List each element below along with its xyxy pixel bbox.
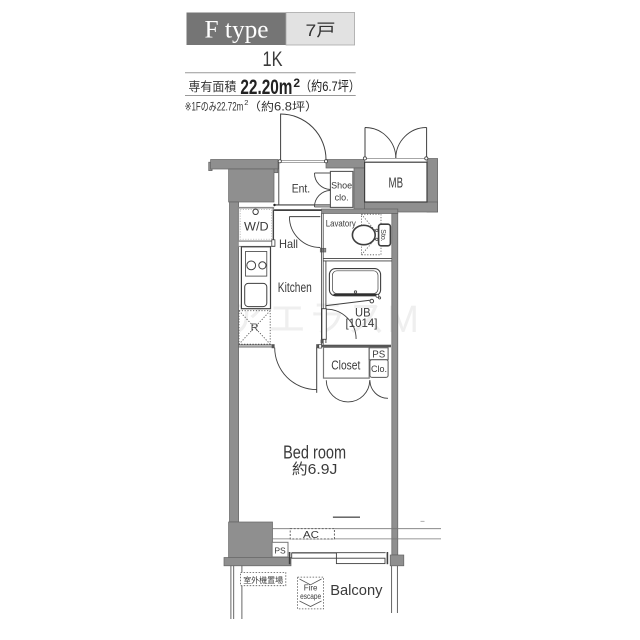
svg-text:（約6.8坪）: （約6.8坪）	[248, 100, 318, 114]
svg-text:PS: PS	[274, 546, 286, 556]
svg-text:escape: escape	[300, 592, 321, 601]
svg-text:Clo.: Clo.	[371, 364, 387, 375]
svg-text:1K: 1K	[263, 48, 283, 71]
svg-text:室外機置場: 室外機置場	[243, 575, 283, 585]
svg-text:Closet: Closet	[331, 358, 360, 372]
svg-text:MB: MB	[389, 174, 404, 191]
svg-text:約6.9J: 約6.9J	[292, 461, 338, 478]
svg-text:PS: PS	[372, 349, 385, 360]
svg-text:F type: F type	[205, 17, 269, 44]
svg-text:Balcony: Balcony	[330, 582, 383, 599]
svg-text:Bed room: Bed room	[283, 442, 346, 462]
svg-text:Shoe: Shoe	[331, 181, 352, 191]
svg-text:専有面積: 専有面積	[188, 79, 236, 94]
svg-text:Sto.: Sto.	[379, 229, 386, 242]
svg-text:Hall: Hall	[279, 237, 298, 251]
svg-text:Kitchen: Kitchen	[278, 280, 312, 295]
svg-text:Lavatory: Lavatory	[326, 219, 356, 230]
svg-text:Fire: Fire	[304, 583, 318, 592]
svg-text:※1Fのみ22.72m: ※1Fのみ22.72m	[185, 101, 244, 114]
svg-text:22.20m: 22.20m	[240, 75, 292, 99]
svg-text:7戸: 7戸	[306, 21, 336, 40]
svg-text:W/D: W/D	[244, 221, 269, 233]
svg-text:clo.: clo.	[335, 192, 349, 202]
svg-text:[1014]: [1014]	[346, 316, 378, 330]
svg-text:Ent.: Ent.	[292, 182, 311, 196]
svg-text:AC: AC	[303, 529, 319, 541]
svg-text:R: R	[251, 322, 259, 334]
svg-text:（約6.7坪）: （約6.7坪）	[300, 79, 360, 94]
